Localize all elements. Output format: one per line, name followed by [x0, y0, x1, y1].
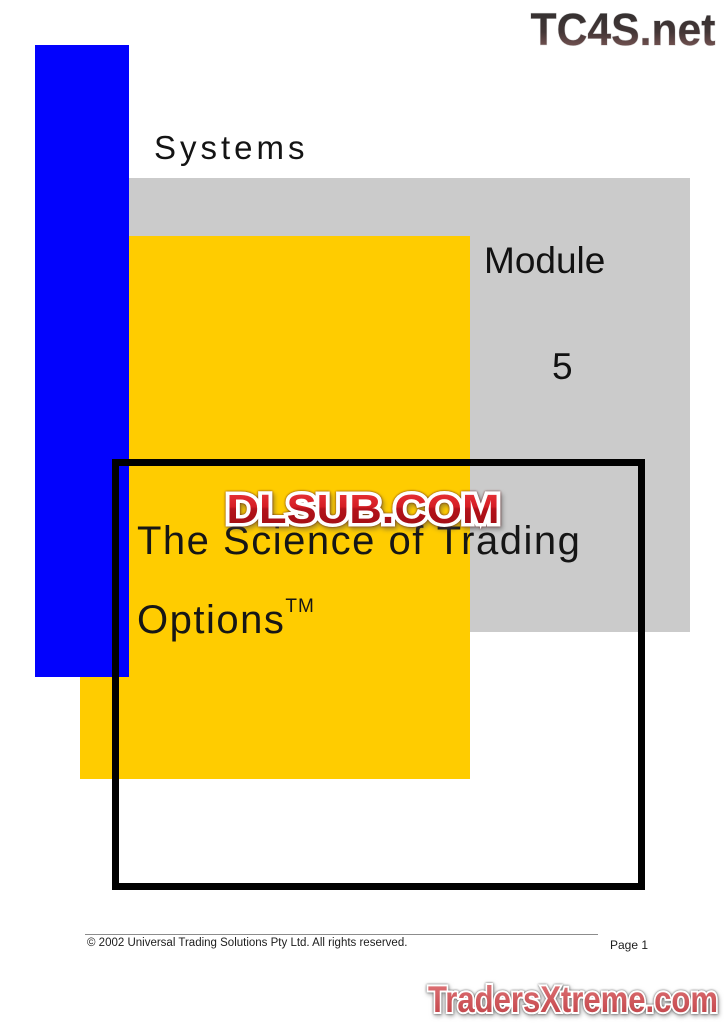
title-line2: Options — [137, 598, 285, 642]
tc4s-logo-text: TC4S.net — [531, 4, 716, 55]
dlsub-logo-text: DLSUB.COM — [227, 486, 500, 532]
footer-divider — [85, 934, 598, 935]
footer-page-number: Page 1 — [610, 938, 648, 952]
dlsub-watermark: DLSUB.COM — [216, 480, 511, 543]
module-label: Module — [484, 240, 605, 282]
tc4s-watermark: TC4S.net — [524, 2, 722, 61]
module-number: 5 — [552, 346, 573, 388]
tc4s-logo-image: TC4S.net — [524, 2, 722, 56]
document-page: Systems Module 5 The Science of Trading … — [0, 0, 724, 1024]
series-label: Systems — [154, 129, 309, 167]
footer-copyright: © 2002 Universal Trading Solutions Pty L… — [87, 937, 407, 949]
trademark-symbol: TM — [285, 596, 314, 617]
tradersxtreme-logo-text: TradersXtreme.com — [428, 979, 718, 1020]
tradersxtreme-logo-image: TradersXtreme.com — [422, 975, 724, 1024]
dlsub-logo-image: DLSUB.COM — [216, 480, 511, 538]
tradersxtreme-watermark: TradersXtreme.com — [422, 975, 724, 1024]
